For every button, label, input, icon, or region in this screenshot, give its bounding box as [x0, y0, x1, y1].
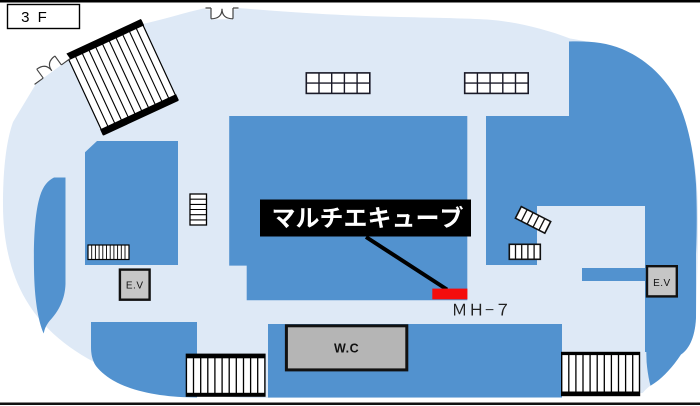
svg-text:W.C: W.C	[334, 342, 359, 356]
svg-text:3 F: 3 F	[21, 9, 49, 26]
svg-text:E.V: E.V	[126, 281, 144, 292]
svg-text:E.V: E.V	[653, 278, 671, 289]
